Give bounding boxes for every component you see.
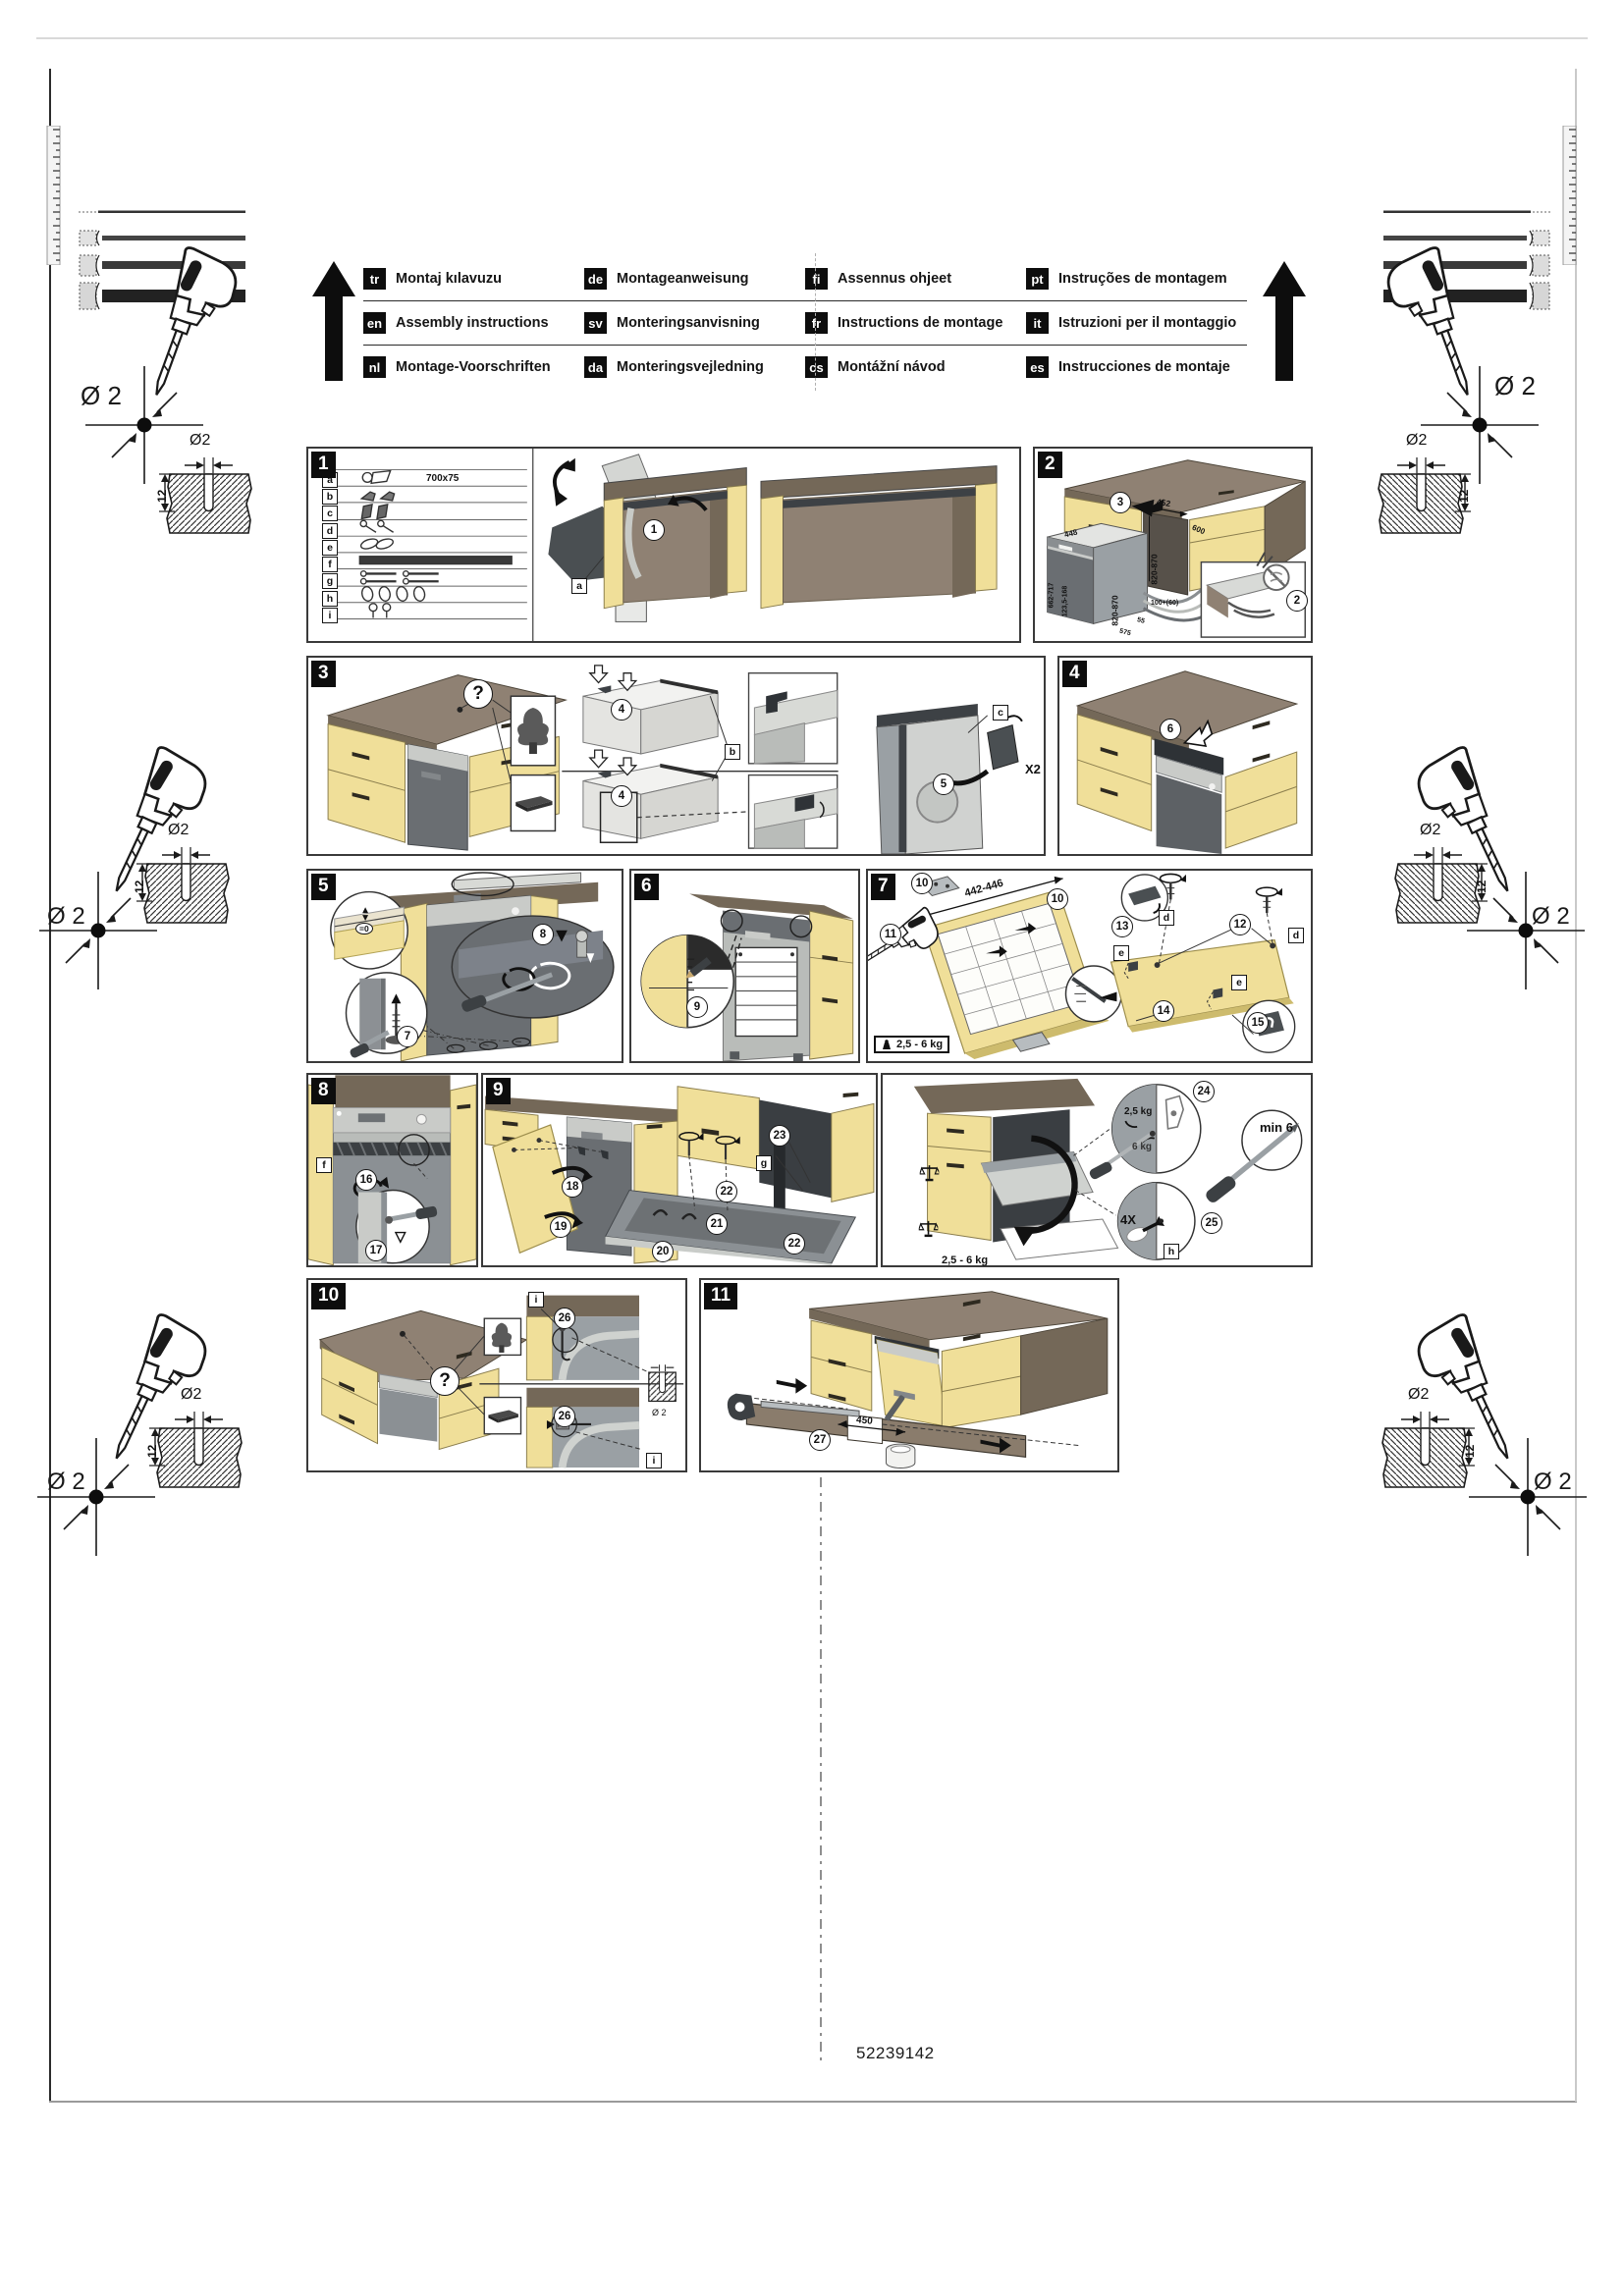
- callout-8: 8: [532, 924, 554, 945]
- tape-size-label: 700x75: [426, 473, 459, 484]
- step-number: 9: [486, 1078, 511, 1104]
- hole-depth-label: 12: [133, 881, 146, 893]
- drill-template-top-left: Ø 2 Ø2 12: [39, 118, 265, 540]
- drill-template-bottom-right: Ø2 12 Ø 2: [1359, 1306, 1585, 1531]
- panel-1-art: [308, 449, 1019, 641]
- step-number: 7: [871, 874, 895, 900]
- lang-sv: svMonteringsanvisning: [584, 312, 805, 334]
- panel-7-art: [868, 871, 1311, 1061]
- hole-depth-label: 12: [145, 1445, 159, 1458]
- lang-code-badge: fi: [805, 268, 828, 290]
- lang-title: Instruções de montagem: [1058, 271, 1227, 287]
- lang-tr: trMontaj kılavuzu: [363, 268, 584, 290]
- hole-diameter-label: Ø2: [181, 1386, 201, 1404]
- drill-diameter-label: Ø 2: [1534, 1468, 1572, 1496]
- step-panel-4: 4 6: [1057, 656, 1313, 856]
- lang-title: Monteringsanvisning: [617, 315, 760, 331]
- table-center-divider: [815, 253, 816, 391]
- lang-title: Monteringsvejledning: [617, 359, 764, 375]
- callout-26: 26: [554, 1308, 575, 1329]
- hole-depth-label: 12: [1463, 1445, 1477, 1458]
- part-ref-b: b: [725, 744, 740, 760]
- hole-diameter-label: Ø2: [189, 432, 210, 450]
- door-weight-range: 2,5 - 6 kg: [942, 1255, 988, 1266]
- hole-depth-label: 12: [1457, 490, 1471, 503]
- lang-code-badge: it: [1026, 312, 1049, 334]
- drill-template-bottom-left: Ø2 12 Ø 2: [39, 1306, 265, 1531]
- callout-6: 6: [1160, 719, 1181, 740]
- drill-diameter-label: Ø 2: [81, 381, 122, 411]
- document-number: 52239142: [856, 2044, 935, 2063]
- lang-title: Istruzioni per il montaggio: [1058, 315, 1236, 331]
- language-row: nlMontage-Voorschriften daMonteringsvejl…: [363, 345, 1247, 389]
- callout-24: 24: [1193, 1081, 1215, 1102]
- callout-11: 11: [880, 924, 901, 945]
- part-ref-h: h: [1164, 1244, 1179, 1259]
- page-border-bottom: [49, 2101, 1577, 2103]
- quantity-4x: 4X: [1120, 1212, 1136, 1227]
- part-ref-e: e: [1113, 945, 1129, 961]
- fold-up-arrow-left: [312, 261, 355, 381]
- zero-gap-label: =0: [355, 923, 373, 934]
- drill-template-top-right: Ø 2 Ø2 12: [1359, 118, 1585, 540]
- hole-diameter-label: Ø2: [1420, 822, 1440, 839]
- ruler-icon: [1560, 126, 1582, 265]
- step-panel-6: 6 9: [629, 869, 860, 1063]
- step-number: 11: [704, 1283, 737, 1309]
- panel-5-art: [308, 871, 622, 1061]
- callout-26: 26: [554, 1406, 575, 1427]
- part-key-g: g: [322, 573, 338, 589]
- door-weight-range: 2,5 - 6 kg: [874, 1036, 949, 1053]
- callout-27: 27: [809, 1429, 831, 1451]
- hole-section-icon: [145, 1404, 253, 1502]
- niche-height-dim: 820-870: [1150, 554, 1160, 584]
- part-ref-f: f: [316, 1157, 332, 1173]
- hole-depth-label: 12: [155, 490, 169, 503]
- hole-diameter-label: Ø2: [1408, 1386, 1429, 1404]
- callout-17: 17: [365, 1240, 387, 1261]
- panel-9b-art: [883, 1075, 1311, 1265]
- lang-title: Montaj kılavuzu: [396, 271, 502, 287]
- step-panel-1: 1: [306, 447, 1021, 643]
- lang-code-badge: tr: [363, 268, 386, 290]
- callout-1: 1: [643, 519, 665, 541]
- callout-18: 18: [562, 1176, 583, 1198]
- base-dim-a: 55: [1136, 616, 1145, 625]
- callout-22: 22: [784, 1233, 805, 1255]
- callout-15: 15: [1247, 1012, 1269, 1034]
- lang-de: deMontageanweisung: [584, 268, 805, 290]
- panel-6-art: [631, 871, 858, 1061]
- hole-section-icon: [155, 450, 263, 548]
- callout-20: 20: [652, 1241, 674, 1262]
- lang-code-badge: da: [584, 356, 607, 378]
- lang-fi: fiAssennus ohjeet: [805, 268, 1026, 290]
- language-row: enAssembly instructions svMonteringsanvi…: [363, 300, 1247, 345]
- mini-hole-diameter: Ø 2: [652, 1408, 667, 1417]
- hole-diameter-label: Ø2: [1406, 432, 1427, 450]
- panel-3-art: [308, 658, 1044, 854]
- language-row: trMontaj kılavuzu deMontageanweisung fiA…: [363, 257, 1247, 300]
- lang-code-badge: en: [363, 312, 386, 334]
- lang-en: enAssembly instructions: [363, 312, 584, 334]
- part-ref-a: a: [571, 578, 587, 594]
- part-key-b: b: [322, 489, 338, 505]
- lang-code-badge: es: [1026, 356, 1049, 378]
- drill-diameter-label: Ø 2: [1532, 903, 1570, 931]
- callout-21: 21: [706, 1213, 728, 1235]
- lang-code-badge: sv: [584, 312, 607, 334]
- ruler-icon: [44, 126, 66, 265]
- step-panel-9: 9: [481, 1073, 878, 1267]
- instruction-sheet-page: Ø 2 Ø2 12 Ø 2 Ø2 12 Ø2 12 Ø 2 Ø2 1: [0, 0, 1624, 2296]
- drill-diameter-label: Ø 2: [47, 903, 85, 931]
- lang-title: Instrucciones de montaje: [1058, 359, 1230, 375]
- callout-22: 22: [716, 1181, 737, 1202]
- fold-up-arrow-right: [1263, 261, 1306, 381]
- part-ref-g: g: [756, 1155, 772, 1171]
- lang-title: Montážní návod: [838, 359, 946, 375]
- lang-da: daMonteringsvejledning: [584, 356, 805, 378]
- drill-template-middle-left: Ø2 12 Ø 2: [39, 726, 265, 1021]
- spring-min-label: 2,5 kg: [1124, 1106, 1152, 1117]
- part-key-f: f: [322, 557, 338, 572]
- lang-title: Instructions de montage: [838, 315, 1002, 331]
- lang-code-badge: de: [584, 268, 607, 290]
- part-ref-c: c: [993, 705, 1008, 721]
- callout-4: 4: [611, 699, 632, 721]
- panel-2-art: [1035, 449, 1311, 641]
- fold-line: [820, 1477, 822, 2066]
- step-panel-10: 10: [306, 1278, 687, 1472]
- callout-2: 2: [1286, 590, 1308, 612]
- step-number: 3: [311, 661, 336, 687]
- lang-code-badge: fr: [805, 312, 828, 334]
- step-panel-9-continued: 2,5 - 6 kg 24 2,5 kg 6 kg min 6 4X 25 h: [881, 1073, 1313, 1267]
- callout-16: 16: [355, 1169, 377, 1191]
- part-key-c: c: [322, 506, 338, 521]
- drill-crosshair-icon: [37, 1438, 155, 1556]
- lang-nl: nlMontage-Voorschriften: [363, 356, 584, 378]
- dw-side-dim-a: 662-717: [1048, 583, 1055, 609]
- callout-12: 12: [1229, 914, 1251, 935]
- lang-fr: frInstructions de montage: [805, 312, 1026, 334]
- step-number: 6: [634, 874, 659, 900]
- step-number: 4: [1062, 661, 1087, 687]
- step-panel-3: 3: [306, 656, 1046, 856]
- callout-4: 4: [611, 785, 632, 807]
- part-ref-d: d: [1288, 928, 1304, 943]
- weight-text: 2,5 - 6 kg: [896, 1039, 943, 1050]
- panel-4-art: [1059, 658, 1311, 854]
- spring-max-label: 6 kg: [1132, 1142, 1152, 1152]
- lang-cs: csMontážní návod: [805, 356, 1026, 378]
- drill-diameter-label: Ø 2: [47, 1468, 85, 1496]
- niche-width-dim: 452: [1156, 497, 1171, 508]
- callout-5: 5: [933, 774, 954, 795]
- part-key-i: i: [322, 608, 338, 623]
- choice-question-mark: ?: [430, 1366, 460, 1396]
- part-key-e: e: [322, 540, 338, 556]
- callout-13: 13: [1111, 916, 1133, 937]
- callout-10: 10: [911, 873, 933, 894]
- step-number: 1: [311, 452, 336, 478]
- step-number: 2: [1038, 452, 1062, 478]
- lang-es: esInstrucciones de montaje: [1026, 356, 1247, 378]
- panel-10-art: [308, 1280, 685, 1470]
- callout-10: 10: [1047, 888, 1068, 910]
- weight-icon: [881, 1039, 893, 1050]
- min-turns-label: min 6: [1260, 1120, 1293, 1135]
- lang-title: Assembly instructions: [396, 315, 549, 331]
- part-key-d: d: [322, 523, 338, 539]
- callout-3: 3: [1110, 492, 1131, 513]
- step-panel-7: 7: [866, 869, 1313, 1063]
- callout-23: 23: [769, 1125, 790, 1147]
- quantity-x2: X2: [1025, 762, 1041, 776]
- lang-title: Montage-Voorschriften: [396, 359, 551, 375]
- lang-title: Montageanweisung: [617, 271, 749, 287]
- hole-depth-label: 12: [1475, 881, 1489, 893]
- hole-diameter-label: Ø2: [168, 822, 189, 839]
- drill-diameter-label: Ø 2: [1494, 371, 1536, 401]
- callout-9: 9: [686, 996, 708, 1018]
- part-key-h: h: [322, 591, 338, 607]
- step-number: 5: [311, 874, 336, 900]
- plinth-cut-dim: 450: [855, 1415, 873, 1427]
- callout-14: 14: [1153, 1000, 1174, 1022]
- lang-code-badge: nl: [363, 356, 386, 378]
- lang-title: Assennus ohjeet: [838, 271, 951, 287]
- choice-question-mark: ?: [463, 679, 493, 709]
- step-number: 10: [311, 1283, 346, 1309]
- part-ref-d: d: [1159, 910, 1174, 926]
- step-panel-5: 5: [306, 869, 623, 1063]
- step-panel-11: 11: [699, 1278, 1119, 1472]
- lang-pt: ptInstruções de montagem: [1026, 268, 1247, 290]
- dw-side-dim-b: 123,5-168: [1061, 586, 1068, 617]
- drill-crosshair-icon: [1469, 1438, 1587, 1556]
- lang-it: itIstruzioni per il montaggio: [1026, 312, 1247, 334]
- panel-9-art: [483, 1075, 876, 1265]
- part-ref-i: i: [646, 1453, 662, 1468]
- callout-7: 7: [397, 1026, 418, 1047]
- callout-25: 25: [1201, 1212, 1222, 1234]
- dw-height-dim: 820-870: [1110, 595, 1120, 625]
- step-panel-2: 2: [1033, 447, 1313, 643]
- step-panel-8: 8 f 16 17: [306, 1073, 478, 1267]
- lang-code-badge: cs: [805, 356, 828, 378]
- page-border-top: [36, 37, 1588, 39]
- part-ref-i: i: [528, 1292, 544, 1308]
- step-number: 8: [311, 1078, 336, 1104]
- drill-template-middle-right: Ø2 12 Ø 2: [1359, 726, 1585, 1021]
- lang-code-badge: pt: [1026, 268, 1049, 290]
- hose-length-dim: 100+(60): [1151, 600, 1178, 607]
- language-table: trMontaj kılavuzu deMontageanweisung fiA…: [363, 257, 1247, 387]
- part-ref-e: e: [1231, 975, 1247, 990]
- panel-11-art: [701, 1280, 1117, 1470]
- callout-19: 19: [550, 1216, 571, 1238]
